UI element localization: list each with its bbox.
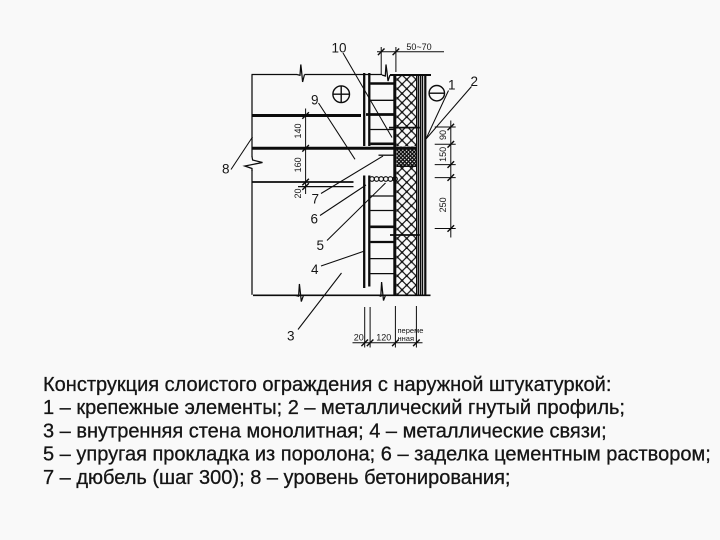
svg-text:120: 120 (376, 332, 391, 342)
svg-text:20: 20 (354, 332, 364, 342)
svg-text:8: 8 (222, 162, 230, 177)
svg-text:140: 140 (293, 123, 303, 138)
svg-text:10: 10 (332, 41, 347, 56)
svg-text:1 – крепежные элементы; 2 – ме: 1 – крепежные элементы; 2 – металлически… (43, 397, 625, 419)
svg-text:2: 2 (471, 74, 479, 89)
svg-text:Конструкция слоистого огражден: Конструкция слоистого ограждения с наруж… (43, 374, 611, 396)
svg-text:1: 1 (448, 78, 456, 93)
svg-text:50~70: 50~70 (406, 42, 431, 52)
svg-text:90: 90 (438, 130, 448, 140)
svg-text:нная: нная (398, 334, 415, 343)
svg-text:7 – дюбель (шаг 300); 8 – уров: 7 – дюбель (шаг 300); 8 – уровень бетони… (43, 467, 510, 489)
svg-text:3: 3 (287, 329, 295, 344)
svg-text:5: 5 (317, 238, 325, 253)
svg-text:20: 20 (293, 188, 303, 198)
svg-text:160: 160 (293, 157, 303, 172)
svg-text:250: 250 (438, 197, 448, 212)
svg-text:4: 4 (311, 262, 319, 277)
svg-text:7: 7 (312, 192, 320, 207)
svg-text:150: 150 (438, 147, 448, 162)
svg-text:3 – внутренняя стена монолитна: 3 – внутренняя стена монолитная; 4 – мет… (43, 420, 607, 442)
svg-text:9: 9 (311, 93, 319, 108)
svg-text:6: 6 (311, 212, 319, 227)
svg-text:5 – упругая прокладка из порол: 5 – упругая прокладка из поролона; 6 – з… (43, 444, 711, 466)
